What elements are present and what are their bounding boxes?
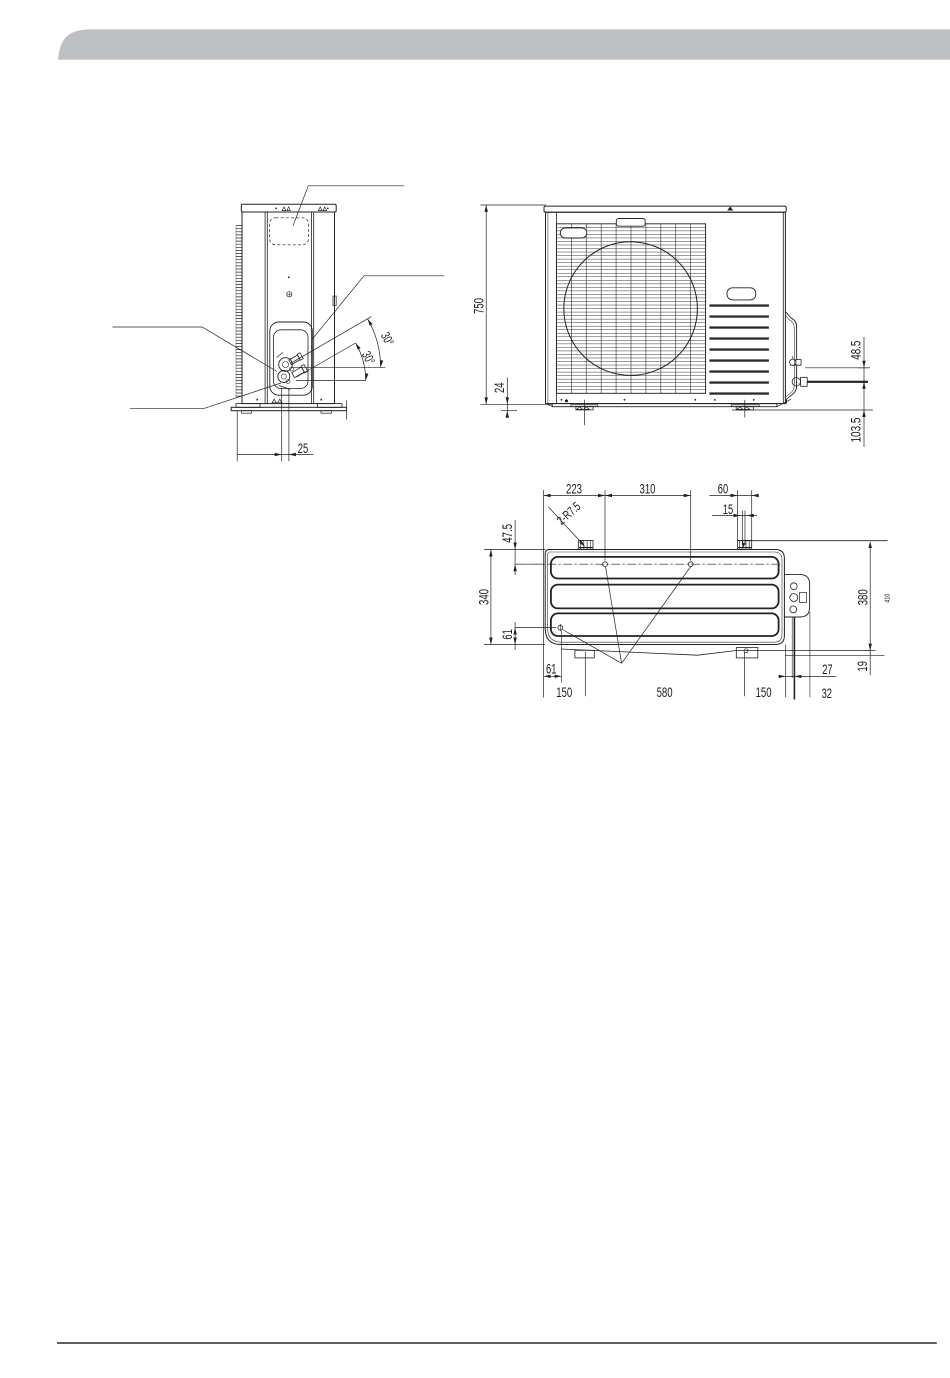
svg-text:150: 150 [556, 684, 572, 700]
svg-text:2-R7.5: 2-R7.5 [554, 499, 583, 527]
svg-text:30°: 30° [378, 330, 397, 349]
svg-text:60: 60 [718, 481, 729, 497]
svg-text:580: 580 [657, 684, 673, 700]
svg-text:310: 310 [640, 481, 656, 497]
svg-text:750: 750 [471, 298, 487, 314]
svg-text:61: 61 [499, 629, 515, 640]
svg-text:223: 223 [566, 481, 582, 497]
svg-text:24: 24 [491, 382, 507, 393]
svg-text:380: 380 [855, 589, 871, 605]
svg-text:103.5: 103.5 [848, 417, 864, 442]
svg-text:19: 19 [854, 661, 870, 672]
svg-text:48.5: 48.5 [848, 341, 864, 360]
svg-text:47.5: 47.5 [499, 524, 515, 543]
svg-text:150: 150 [756, 684, 772, 700]
svg-text:30°: 30° [359, 349, 378, 368]
svg-text:15: 15 [723, 501, 734, 517]
svg-text:340: 340 [475, 589, 491, 605]
svg-text:32: 32 [822, 685, 833, 701]
svg-text:25: 25 [298, 440, 309, 456]
svg-text:27: 27 [822, 661, 833, 677]
svg-text:61: 61 [546, 660, 557, 676]
svg-text:410: 410 [882, 594, 891, 603]
